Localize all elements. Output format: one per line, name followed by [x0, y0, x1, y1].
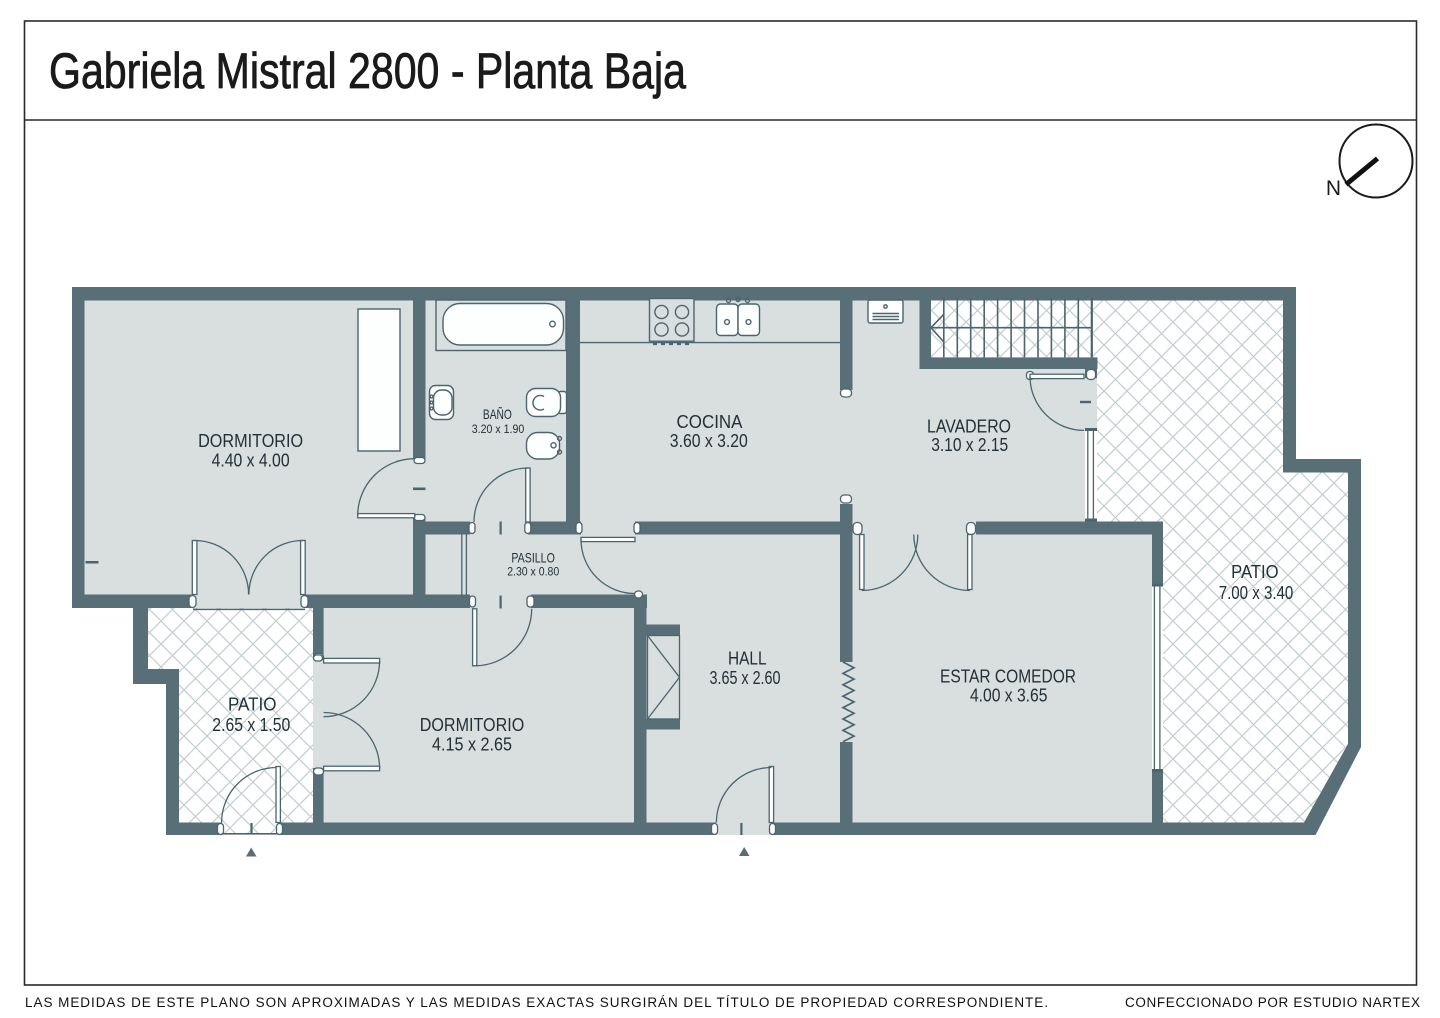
svg-text:3.20 x 1.90: 3.20 x 1.90	[472, 424, 525, 436]
svg-text:3.65 x 2.60: 3.65 x 2.60	[710, 668, 781, 688]
svg-text:3.60 x 3.20: 3.60 x 3.20	[670, 431, 748, 451]
svg-text:7.00 x 3.40: 7.00 x 3.40	[1219, 583, 1294, 603]
svg-text:PATIO: PATIO	[228, 695, 277, 715]
svg-text:DORMITORIO: DORMITORIO	[198, 431, 303, 451]
svg-text:2.65 x 1.50: 2.65 x 1.50	[212, 715, 290, 735]
svg-text:HALL: HALL	[728, 649, 767, 669]
svg-text:CONFECCIONADO POR ESTUDIO NART: CONFECCIONADO POR ESTUDIO NARTEX	[1125, 995, 1420, 1010]
svg-text:DORMITORIO: DORMITORIO	[420, 715, 525, 735]
svg-text:3.10 x 2.15: 3.10 x 2.15	[931, 435, 1008, 455]
svg-text:4.00 x 3.65: 4.00 x 3.65	[970, 686, 1048, 706]
svg-text:PATIO: PATIO	[1231, 562, 1279, 582]
svg-text:Gabriela Mistral 2800 - Planta: Gabriela Mistral 2800 - Planta Baja	[49, 43, 686, 99]
svg-text:LAS MEDIDAS DE ESTE PLANO SON: LAS MEDIDAS DE ESTE PLANO SON APROXIMADA…	[25, 995, 1048, 1010]
svg-text:ESTAR COMEDOR: ESTAR COMEDOR	[940, 667, 1076, 687]
svg-text:N: N	[1326, 177, 1341, 200]
svg-text:4.40 x 4.00: 4.40 x 4.00	[212, 451, 290, 471]
svg-text:2.30 x 0.80: 2.30 x 0.80	[507, 567, 559, 579]
svg-text:LAVADERO: LAVADERO	[927, 417, 1011, 437]
svg-text:BAÑO: BAÑO	[483, 406, 512, 422]
svg-text:PASILLO: PASILLO	[511, 550, 555, 566]
svg-text:4.15 x 2.65: 4.15 x 2.65	[432, 735, 512, 755]
svg-text:COCINA: COCINA	[677, 412, 743, 432]
